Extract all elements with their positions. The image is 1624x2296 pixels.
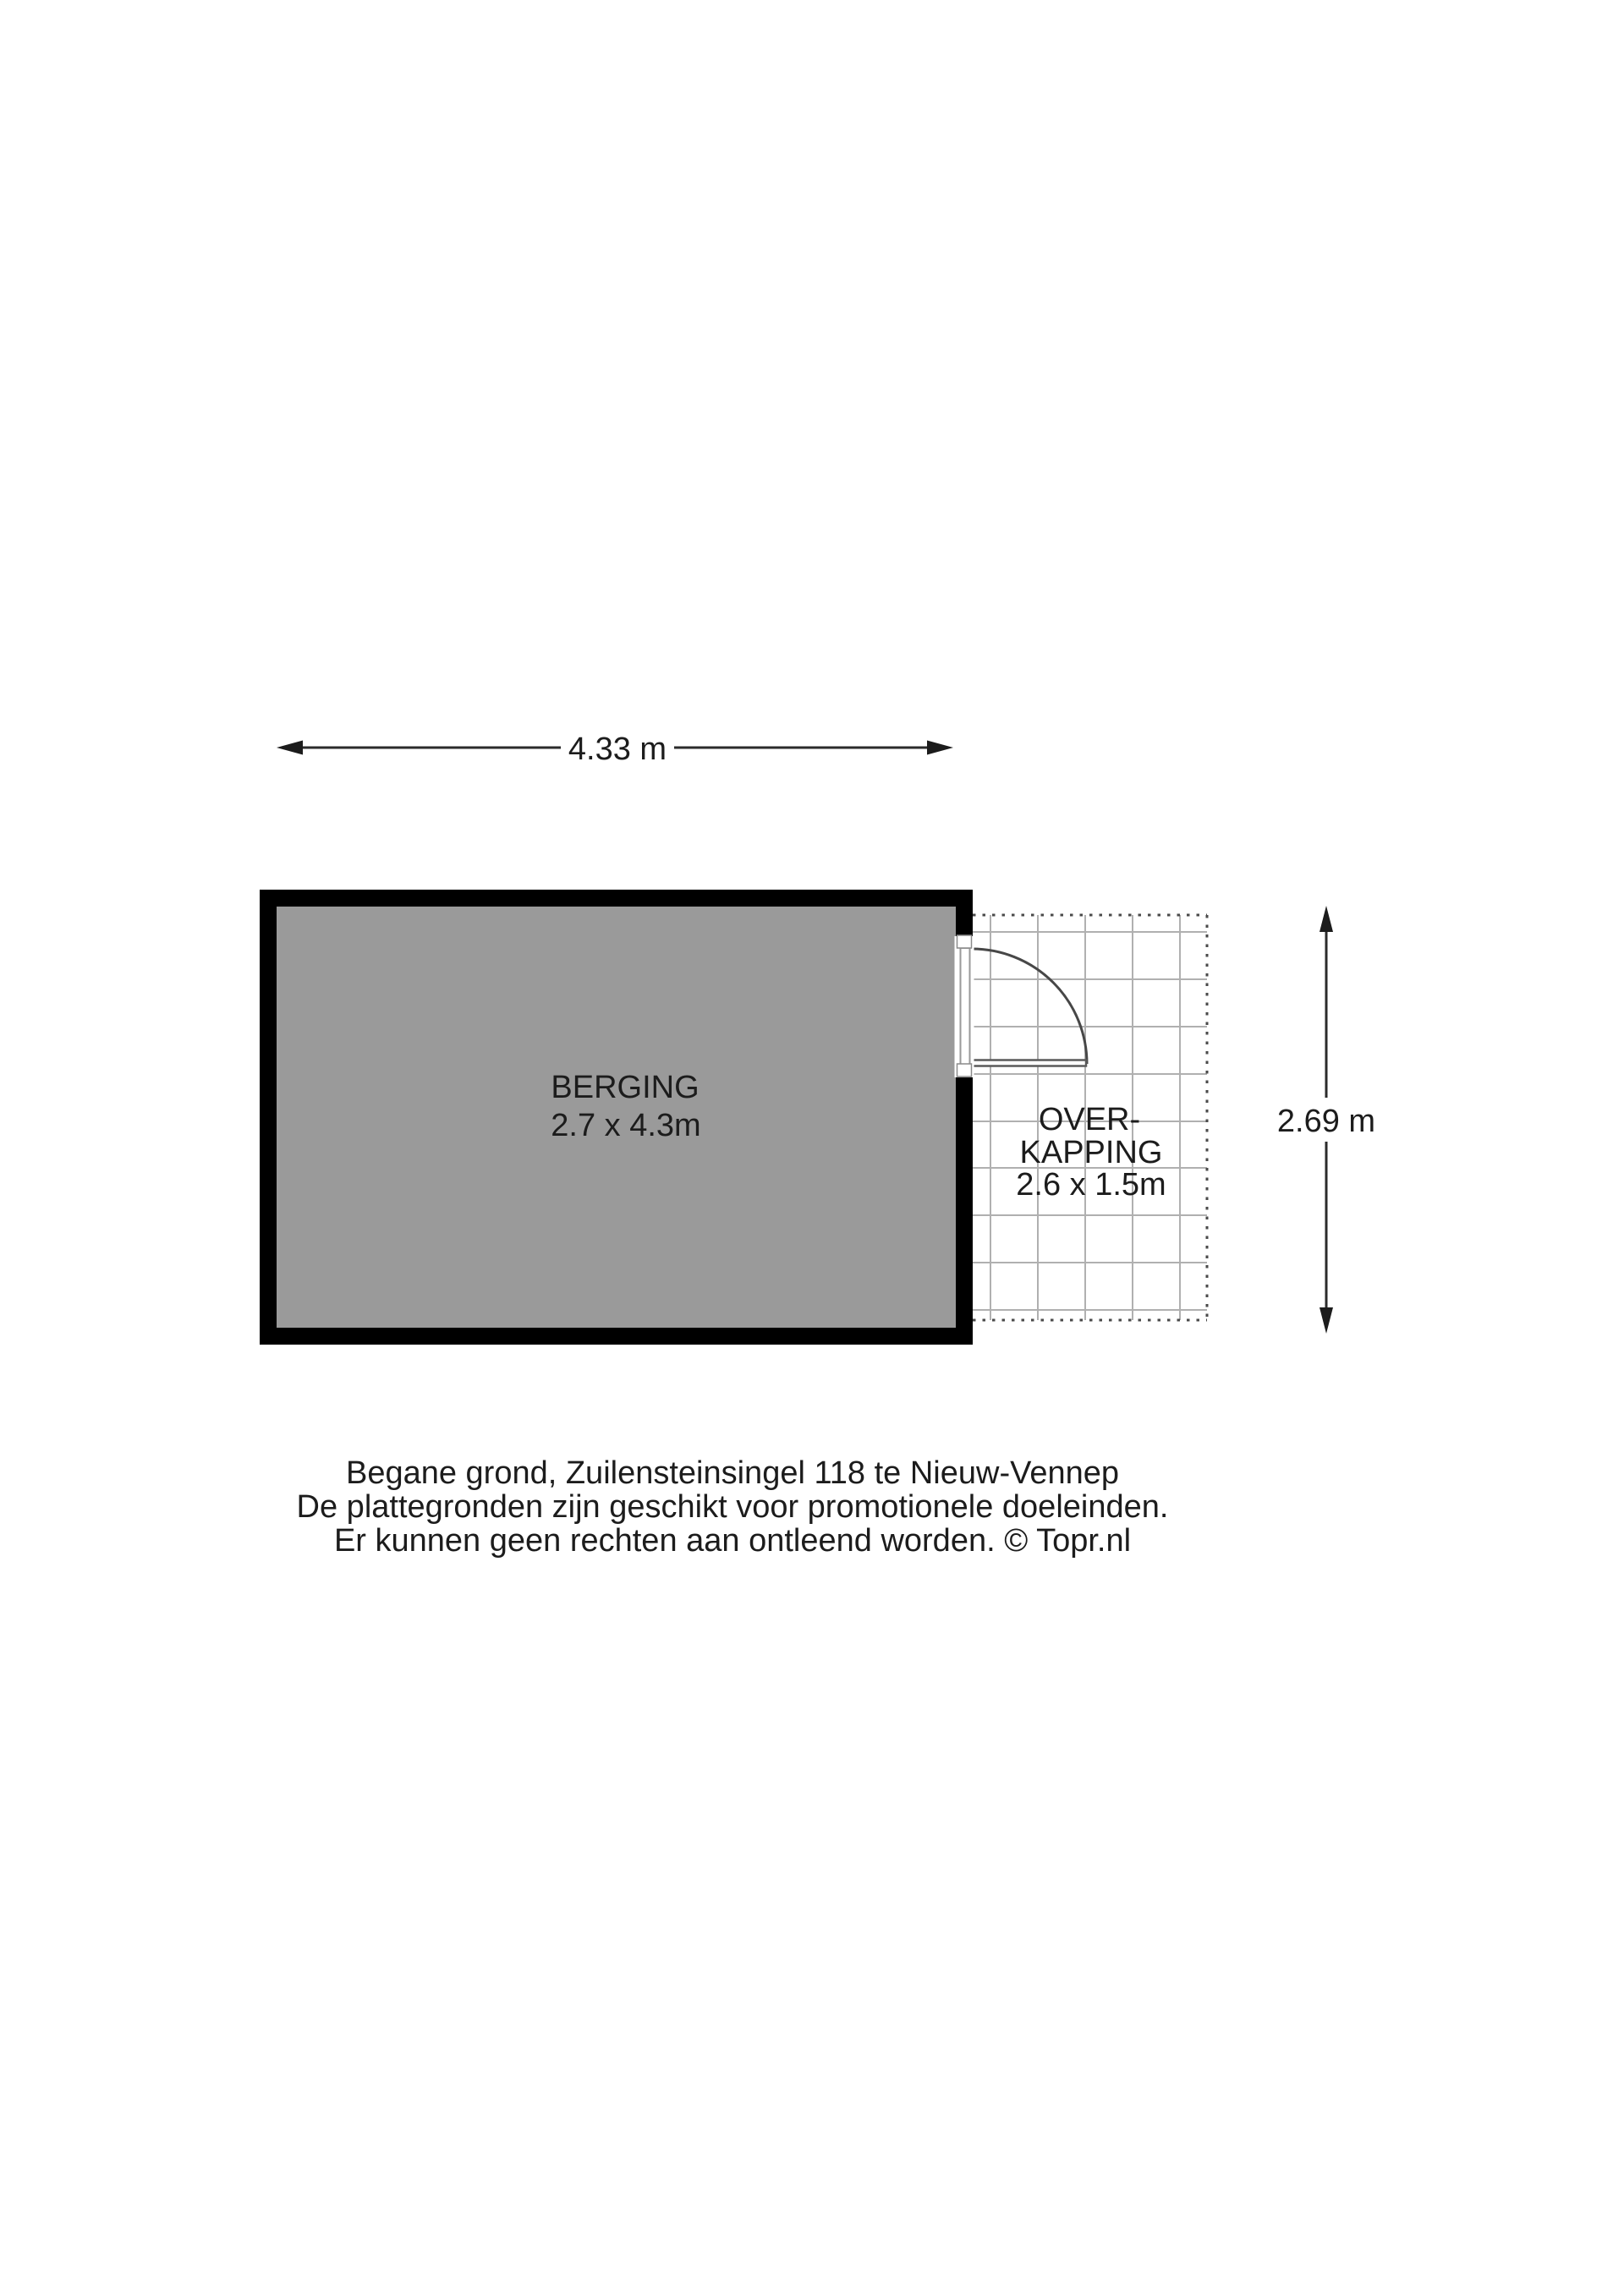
svg-text:Er kunnen geen rechten aan ont: Er kunnen geen rechten aan ontleend word… (334, 1523, 1131, 1559)
svg-text:De plattegronden zijn geschikt: De plattegronden zijn geschikt voor prom… (297, 1489, 1169, 1525)
svg-text:BERGING: BERGING (551, 1070, 699, 1105)
svg-text:2.7 x 4.3m: 2.7 x 4.3m (551, 1108, 700, 1143)
svg-text:2.6 x 1.5m: 2.6 x 1.5m (1016, 1167, 1166, 1203)
svg-text:2.69 m: 2.69 m (1277, 1104, 1375, 1139)
svg-text:4.33 m: 4.33 m (568, 732, 667, 767)
svg-text:Begane grond, Zuilensteinsinge: Begane grond, Zuilensteinsingel 118 te N… (346, 1455, 1119, 1491)
svg-text:KAPPING: KAPPING (1020, 1135, 1163, 1170)
svg-text:OVER-: OVER- (1039, 1102, 1140, 1137)
